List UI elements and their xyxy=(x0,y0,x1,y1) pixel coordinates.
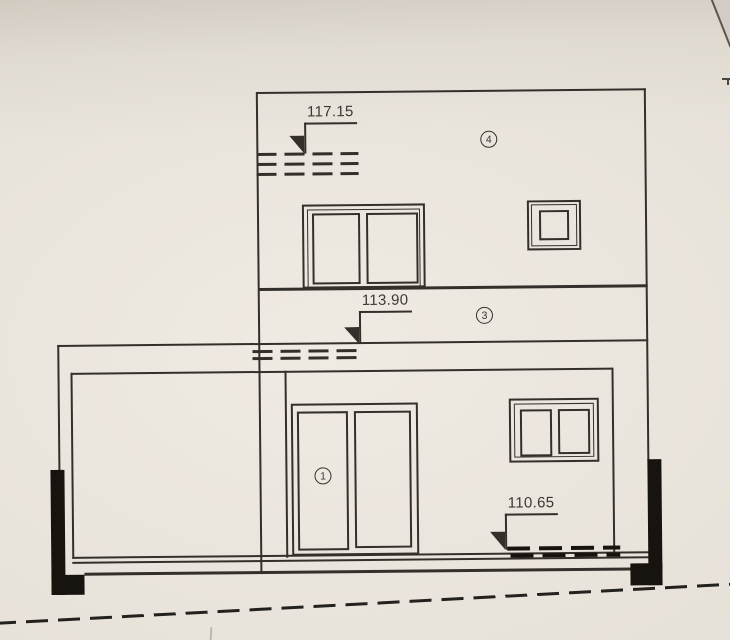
upper-floor-top-line xyxy=(257,88,646,94)
slab-hidden-line xyxy=(256,152,358,156)
elevation-label-117-15: 117.15 xyxy=(304,104,357,125)
terrace-inner-left-line xyxy=(70,373,74,559)
level-117-15-pole xyxy=(304,123,306,154)
callout-4-number: 4 xyxy=(486,133,492,145)
level-marker-icon xyxy=(289,136,304,154)
ground-floor-left-line xyxy=(284,371,288,558)
building-elevation-drawing: 117.15 113.90 110.65 4 3 1 xyxy=(0,0,730,640)
terrace-left-edge-line xyxy=(57,345,60,473)
callout-4-badge: 4 xyxy=(480,131,497,148)
ground-floor-right-line xyxy=(611,368,615,555)
elevation-label-110-65: 110.65 xyxy=(505,495,558,516)
left-footing-base-fill xyxy=(51,575,84,595)
foundation-hidden-line xyxy=(507,546,620,551)
photographed-drawing-sheet: 117.15 113.90 110.65 4 3 1 xyxy=(0,0,730,640)
slab-hidden-line xyxy=(252,356,362,360)
upper-window-pane xyxy=(539,210,569,240)
ground-window-left-pane xyxy=(520,409,552,456)
right-footing-base-fill xyxy=(630,563,662,585)
backdrop-mark xyxy=(727,78,729,85)
level-marker-icon xyxy=(490,532,505,550)
callout-3-number: 3 xyxy=(481,309,487,321)
terrace-inner-top-line xyxy=(70,368,612,375)
callout-3-badge: 3 xyxy=(476,307,493,324)
balcony-door-left-panel xyxy=(312,213,361,284)
slab-hidden-line xyxy=(257,172,359,176)
callout-1-badge: 1 xyxy=(314,467,331,484)
level-marker-icon xyxy=(344,327,359,344)
slab-hidden-line xyxy=(252,349,362,353)
level-113-90-pole xyxy=(359,311,361,344)
foundation-bottom-line xyxy=(84,567,631,575)
callout-1-number: 1 xyxy=(320,470,326,482)
slab-hidden-line xyxy=(256,162,358,166)
building-right-edge-line xyxy=(644,88,650,461)
balcony-door-right-panel xyxy=(366,212,419,283)
ground-window-right-pane xyxy=(558,409,590,454)
level-110-65-pole xyxy=(505,514,507,550)
elevation-label-113-90: 113.90 xyxy=(359,293,412,314)
ground-door-right-panel xyxy=(354,411,412,549)
